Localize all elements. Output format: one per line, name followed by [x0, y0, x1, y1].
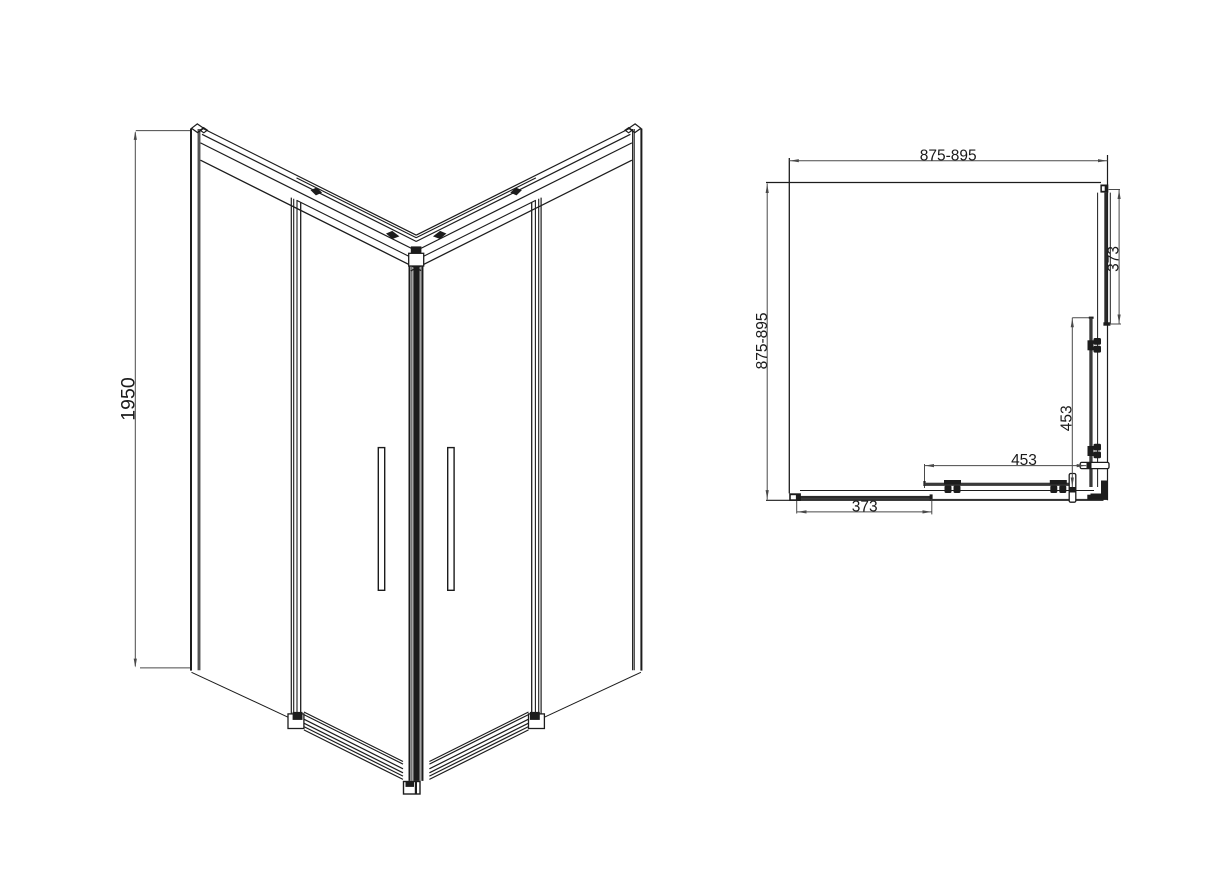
- svg-text:373: 373: [1106, 246, 1123, 272]
- svg-text:453: 453: [1059, 405, 1076, 431]
- svg-text:1950: 1950: [118, 377, 140, 421]
- svg-text:373: 373: [852, 499, 878, 516]
- svg-text:875-895: 875-895: [920, 147, 977, 164]
- svg-text:875-895: 875-895: [754, 312, 771, 369]
- svg-text:453: 453: [1011, 452, 1037, 469]
